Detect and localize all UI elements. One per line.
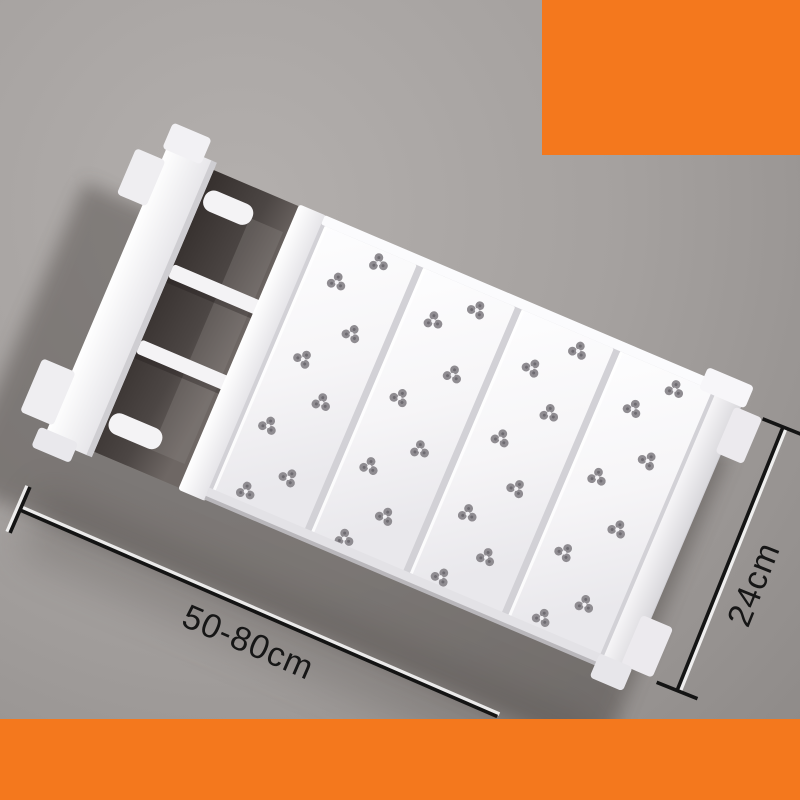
orange-block-top-right xyxy=(542,0,800,155)
product-photo-stage: 50-80cm 24cm xyxy=(0,0,800,800)
orange-banner-bottom xyxy=(0,719,800,800)
product-photo: 50-80cm 24cm xyxy=(0,0,800,800)
